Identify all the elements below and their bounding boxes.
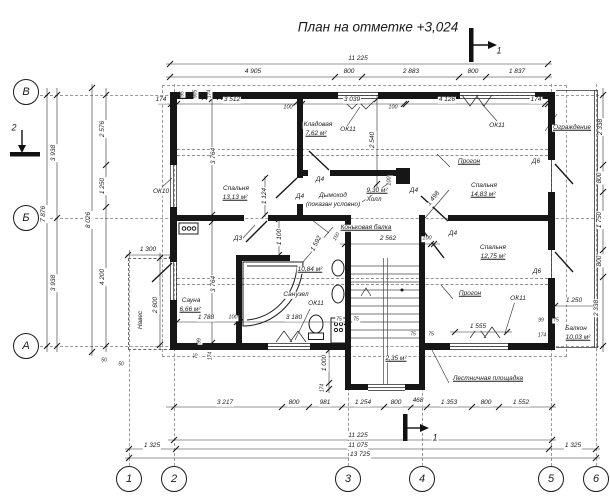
opening-label: Д4 xyxy=(409,188,419,195)
dimension-label: 174 xyxy=(530,97,543,104)
dimension-label: 11 225 xyxy=(347,433,368,440)
dimension-label: 99 xyxy=(537,319,545,324)
axis-bubble-6: 6 xyxy=(583,466,609,492)
room-label: 10,03 м² xyxy=(565,335,592,342)
exterior-wall xyxy=(170,343,268,350)
note-label: Коньковая балка xyxy=(340,225,393,232)
dimension-label: 1 300 xyxy=(139,247,157,254)
dimension-label: 1 555 xyxy=(469,324,487,331)
dimension-label: 75 xyxy=(352,318,360,323)
dimension-label: 4 905 xyxy=(244,69,262,76)
section-mark-label: 1 xyxy=(495,47,502,56)
dimension-label: 174 xyxy=(155,97,168,104)
section-mark-label: 1 xyxy=(431,434,438,443)
room-label: Спальня xyxy=(222,186,250,193)
dimension-label: 1 254 xyxy=(354,400,372,407)
axis-bubble-В: В xyxy=(13,79,39,105)
dimension-label: 3 764 xyxy=(211,147,218,165)
door-leaf xyxy=(309,151,329,170)
opening-label: ОК11 xyxy=(307,301,325,308)
dimension-label: 11 225 xyxy=(347,56,368,63)
door-leaf xyxy=(152,263,172,282)
opening-label: Д3 xyxy=(233,236,243,243)
window-chevron-icon xyxy=(476,95,492,106)
interior-wall xyxy=(268,215,351,221)
note-label: Лестничная площадка xyxy=(452,376,524,383)
dimension-label: 1 100 xyxy=(277,228,284,246)
room-label: Спальня xyxy=(470,183,498,190)
chimney-block xyxy=(396,168,410,184)
stair-newel-dot xyxy=(401,289,404,292)
interior-wall xyxy=(297,204,303,215)
opening-label: Д4 xyxy=(448,231,458,238)
note-label: Прогон xyxy=(458,291,482,298)
sink-icon xyxy=(332,260,344,276)
floor-plan-drawing: План на отметке +3,024 xyxy=(0,0,610,502)
axis-bubble-4: 4 xyxy=(409,466,435,492)
dimension-label: 50 xyxy=(100,359,108,364)
dimension-label: 11 075 xyxy=(347,443,368,450)
dimension-label: 800 xyxy=(343,69,356,76)
dimension-label: 1 250 xyxy=(565,298,583,305)
interior-wall xyxy=(448,215,548,221)
dimension-label: 100 xyxy=(421,236,432,242)
dimension-label: 1 750 xyxy=(597,211,604,229)
exterior-wall xyxy=(170,92,177,165)
sink-icon xyxy=(332,285,344,303)
dimension-label: 50 xyxy=(117,363,125,368)
dimension-label: 4 200 xyxy=(100,268,107,286)
section-mark-label: 2 xyxy=(10,124,17,133)
dimension-label: 99 xyxy=(198,337,203,345)
leader-line xyxy=(347,107,360,126)
dimension-label: 1 788 xyxy=(197,315,215,322)
dimension-label: 4 126 xyxy=(438,97,456,104)
note-label: Ограждение xyxy=(552,125,592,132)
opening-label: Д4 xyxy=(295,194,305,201)
dimension-label: 981 xyxy=(319,400,332,407)
room-label: 2,35 м² xyxy=(384,356,407,363)
dimension-label: 174 xyxy=(208,89,213,99)
axis-bubble-1: 1 xyxy=(116,466,142,492)
dimension-label: 905 xyxy=(194,89,199,99)
dimension-label: 3 938 xyxy=(51,274,58,292)
room-label: 12,75 м² xyxy=(480,254,507,261)
dimension-label: 174 xyxy=(537,334,547,339)
exterior-wall xyxy=(548,192,555,250)
room-label: 13,13 м² xyxy=(222,195,249,202)
note-label: Дымоход xyxy=(318,193,348,200)
dimension-label: 2 338 xyxy=(598,118,605,136)
dimension-label: 75 xyxy=(409,333,417,338)
axis-bubble-Б: Б xyxy=(13,205,39,231)
window-chevron-icon xyxy=(276,331,292,342)
room-label: Сауна xyxy=(181,298,202,305)
dimension-label: 1 000 xyxy=(322,354,329,372)
section-mark-1-bottom xyxy=(403,414,429,441)
room-label: 7,62 м² xyxy=(304,131,327,138)
dimension-label: 75 xyxy=(427,333,435,338)
interior-wall xyxy=(303,170,308,176)
door-leaf xyxy=(276,178,297,198)
dimension-label: 1 353 xyxy=(440,400,458,407)
dimension-label: 95 xyxy=(181,90,186,98)
dimension-label: 75 xyxy=(335,318,343,323)
dimension-label: 100 xyxy=(387,175,393,186)
sauna-stove xyxy=(179,223,198,234)
dimension-label: 2 540 xyxy=(370,131,377,149)
axis-bubble-3: 3 xyxy=(335,466,361,492)
stair-wall xyxy=(405,384,425,390)
window-chevron-icon xyxy=(290,331,306,342)
door-leaf xyxy=(555,252,573,272)
dimension-label: 2 576 xyxy=(100,120,107,138)
stair-wall xyxy=(345,215,351,390)
interior-wall xyxy=(236,255,242,343)
note-label: (показан условно) xyxy=(305,202,361,209)
dimension-label: 800 xyxy=(390,400,403,407)
axis-bubble-2: 2 xyxy=(161,466,187,492)
dimension-label: 1 552 xyxy=(512,400,530,407)
dimension-label: 7 876 xyxy=(41,205,48,223)
opening-label: ОК10 xyxy=(152,189,170,196)
dimension-label: 800 xyxy=(288,400,301,407)
dimension-label: 800 xyxy=(597,172,604,185)
dimension-label: 3 764 xyxy=(211,275,218,293)
dimension-label: 1 250 xyxy=(100,177,107,195)
dimension-label: 13 725 xyxy=(349,452,371,459)
leader-line xyxy=(431,348,449,383)
room-label: Навес xyxy=(138,310,145,330)
section-mark-2-left xyxy=(10,130,40,157)
exterior-wall xyxy=(548,278,555,350)
leader-line xyxy=(243,225,255,238)
dimension-label: 75 xyxy=(552,319,560,324)
exterior-wall xyxy=(170,207,177,262)
interior-wall xyxy=(177,215,244,221)
dimension-label: 2 883 xyxy=(402,69,420,76)
leader-line xyxy=(312,220,329,233)
drawing-title: План на отметке +3,024 xyxy=(298,20,459,35)
leader-line xyxy=(437,154,450,167)
dimension-label: 800 xyxy=(467,69,480,76)
drawing-linework xyxy=(0,0,610,502)
room-label: 6,66 м² xyxy=(178,307,201,314)
dimension-label: 8 026 xyxy=(86,211,93,229)
dimension-label: 3 039 xyxy=(343,97,361,104)
axis-bubble-А: А xyxy=(13,333,39,359)
dimension-label: 1 837 xyxy=(508,69,526,76)
leader-line xyxy=(441,285,453,299)
dimension-label: 800 xyxy=(480,400,493,407)
room-label: Холл xyxy=(366,197,383,204)
room-label: 14,83 м² xyxy=(470,192,497,199)
interior-wall xyxy=(297,99,303,178)
opening-label: Д6 xyxy=(532,269,542,276)
room-label: Кладовая xyxy=(303,122,334,129)
opening-label: ОК11 xyxy=(339,127,357,134)
dimension-label: 3 938 xyxy=(51,144,58,162)
dimension-label: 1 325 xyxy=(143,443,161,450)
opening-label: ОК11 xyxy=(488,123,506,130)
dimension-label: 174 xyxy=(209,351,214,361)
stair-direction-arrow xyxy=(361,288,371,296)
door-leaf xyxy=(555,164,573,184)
axis-bubble-5: 5 xyxy=(538,466,564,492)
dimension-label: 3 512 xyxy=(223,97,241,104)
room-label: 9,30 м² xyxy=(365,188,388,195)
room-label: Спальня xyxy=(479,245,507,252)
leader-line xyxy=(482,104,497,121)
dimension-label: 3 180 xyxy=(285,315,303,322)
dimension-label: 1 325 xyxy=(564,443,582,450)
dimension-label: 800 xyxy=(597,255,604,268)
room-label: Санузел xyxy=(282,292,309,299)
dimension-label: 2 562 xyxy=(379,236,397,243)
dimension-label: 100 xyxy=(282,105,293,111)
room-label: 10,84 м² xyxy=(297,267,324,274)
interior-wall xyxy=(242,255,290,261)
dimension-label: 100 xyxy=(387,105,398,111)
dimension-label: 2 600 xyxy=(153,296,160,314)
window-chevron-icon xyxy=(462,95,478,106)
section-mark-1-top xyxy=(469,28,497,62)
dimension-label: 1 124 xyxy=(262,187,269,205)
dimension-label: 100 xyxy=(227,315,238,321)
stair-wall xyxy=(345,384,368,390)
opening-label: ОК11 xyxy=(509,296,527,303)
dimension-label: 3 217 xyxy=(216,400,234,407)
opening-label: Д4 xyxy=(315,177,325,184)
room-label: Балкон xyxy=(564,326,588,333)
toilet xyxy=(309,315,324,340)
dimension-label: 75 xyxy=(195,352,200,360)
dimension-label: 468 xyxy=(412,398,425,405)
exterior-wall xyxy=(425,343,450,350)
note-label: Прогон xyxy=(457,159,481,166)
exterior-wall xyxy=(310,343,345,350)
opening-label: Д6 xyxy=(531,159,541,166)
dimension-label: 174 xyxy=(321,383,326,393)
dimension-label: 2 338 xyxy=(594,299,601,317)
